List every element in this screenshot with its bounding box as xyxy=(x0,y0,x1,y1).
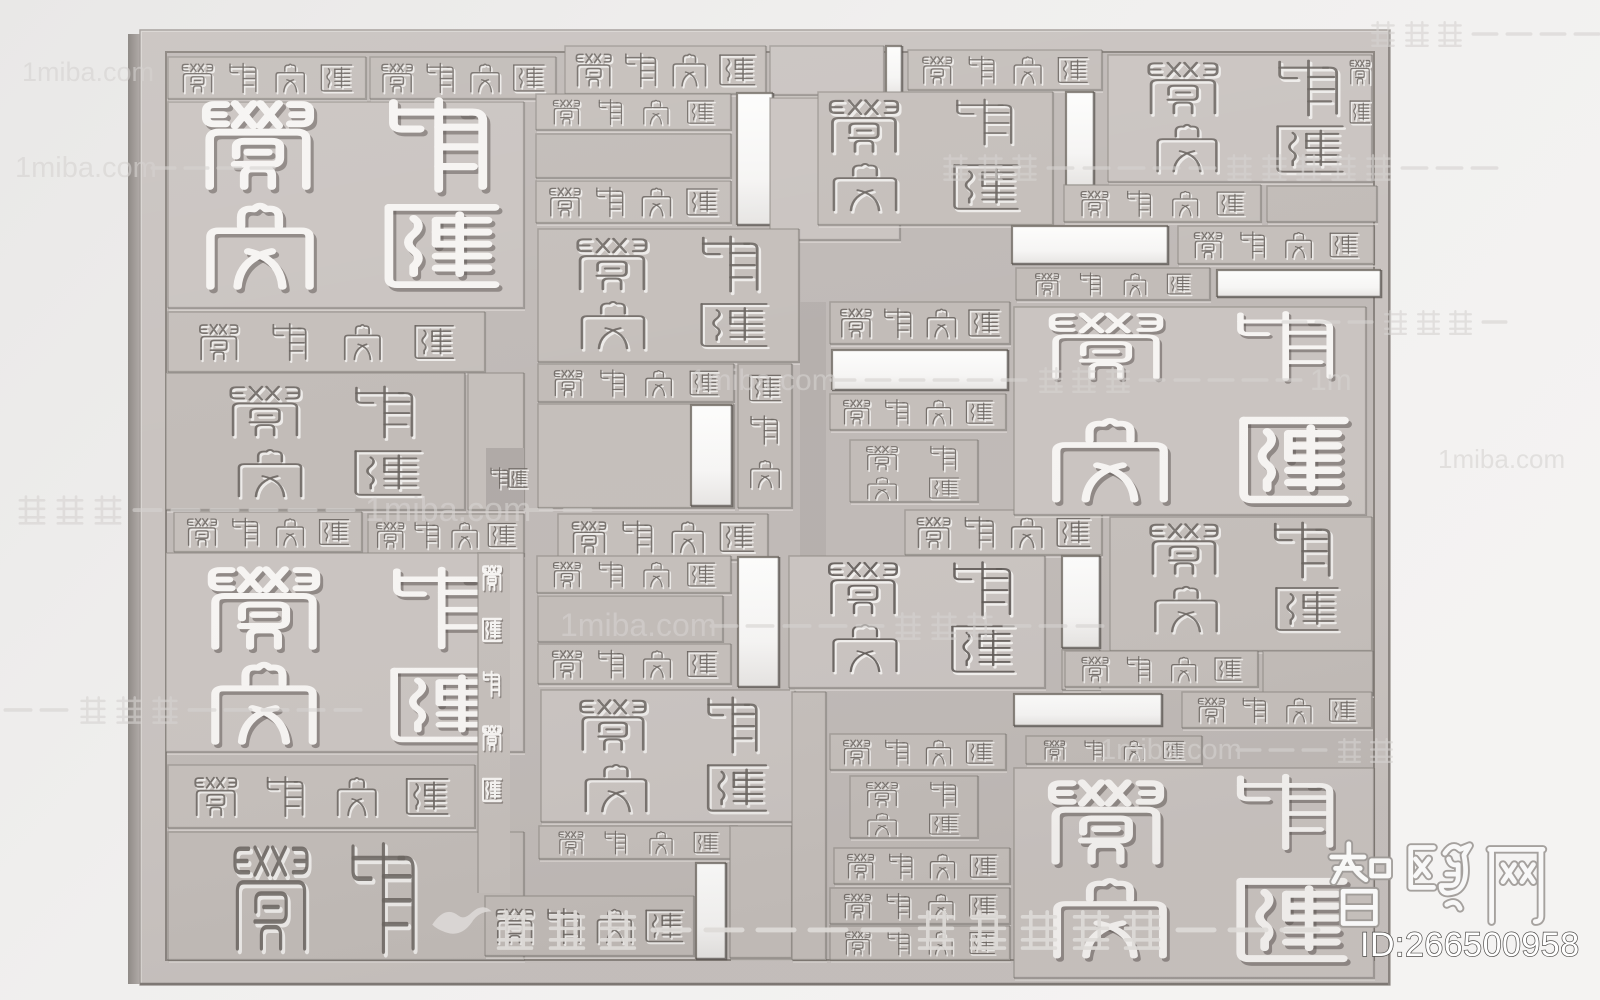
svg-text:ID:266500958: ID:266500958 xyxy=(1360,926,1580,964)
svg-text:1miba.com: 1miba.com xyxy=(1438,444,1565,474)
svg-text:1miba.com: 1miba.com xyxy=(690,364,837,397)
svg-text:1miba.com: 1miba.com xyxy=(560,607,717,643)
svg-text:1miba.com: 1miba.com xyxy=(22,57,154,87)
svg-text:1m: 1m xyxy=(1310,364,1352,397)
svg-text:1miba.com: 1miba.com xyxy=(365,491,531,529)
svg-text:1miba.com: 1miba.com xyxy=(15,152,157,184)
svg-text:1miba.com: 1miba.com xyxy=(1100,734,1242,766)
